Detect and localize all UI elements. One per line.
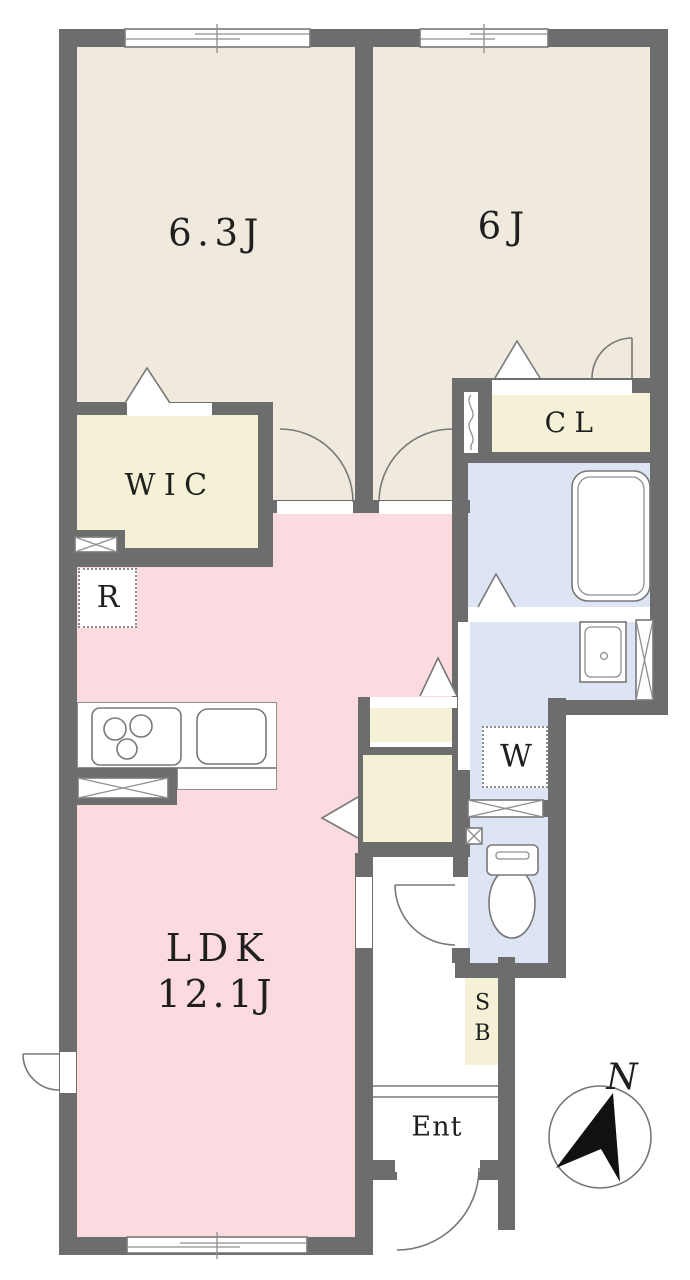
- floor-closet-hall-lower: [363, 755, 452, 842]
- floor-plan: 6.3J 6J WIC CL R W LDK 12.1J SB Ent N: [0, 0, 690, 1280]
- wall-wic-right: [258, 402, 273, 567]
- wall-toilet-left-bottom: [452, 948, 470, 963]
- floor-ldk-mid2: [77, 622, 456, 697]
- label-bedroom2: 6J: [478, 208, 533, 245]
- threshold-side-door: [60, 1052, 76, 1093]
- wall-bedroom-divider: [355, 29, 373, 513]
- threshold-hall-closet: [370, 697, 457, 708]
- label-closet: CL: [545, 409, 602, 437]
- label-bedroom1: 6.3J: [168, 215, 264, 252]
- compass: [549, 1086, 651, 1188]
- wall-outer-bottom: [59, 1237, 373, 1255]
- wall-wic-notch: [77, 530, 125, 548]
- threshold-bedroom1-door: [277, 501, 353, 514]
- floor-bathroom: [468, 463, 650, 607]
- compass-needle: [556, 1093, 620, 1182]
- door-arc-entrance: [397, 1168, 479, 1250]
- wall-toilet-left-top: [453, 857, 468, 877]
- wall-hall-closet-left2: [358, 755, 363, 842]
- wall-service-right: [548, 698, 566, 978]
- wall-kitchen-protrusion: [59, 768, 177, 805]
- kitchen-counter-edge: [177, 768, 277, 790]
- wall-entrance-bottom-right: [478, 1160, 515, 1180]
- wall-hall-closet-divider: [358, 747, 457, 755]
- kitchen-counter: [77, 702, 277, 768]
- threshold-bath-door: [478, 608, 553, 622]
- wall-bath-top: [452, 452, 668, 463]
- floor-washroom-upper: [470, 622, 638, 703]
- wall-hall-right-stub: [498, 1180, 515, 1230]
- sliding-door-washroom: [458, 622, 470, 770]
- label-refrigerator: R: [97, 583, 120, 613]
- wall-bath-left: [452, 463, 468, 630]
- floor-closet-hall-upper: [370, 708, 457, 742]
- wall-hall-right: [498, 957, 515, 1180]
- threshold-entrance-door: [395, 1160, 480, 1172]
- floor-bedroom1-extension: [273, 402, 355, 502]
- floor-toilet: [468, 817, 550, 963]
- wall-outer-right: [650, 29, 668, 715]
- threshold-closet-door: [492, 380, 632, 395]
- wall-wic-bottom: [59, 548, 273, 567]
- door-side-swing: [23, 1054, 59, 1090]
- entrance-step-line-2: [373, 1096, 498, 1098]
- floor-hall-upper: [372, 857, 453, 963]
- floor-bedroom2-extension: [373, 393, 452, 502]
- threshold-wic-door: [127, 403, 212, 416]
- opening-ldk-hall: [356, 877, 372, 948]
- label-wic: WIC: [125, 471, 216, 501]
- wall-hall-closet-bottom: [358, 842, 470, 857]
- threshold-bedroom2-door: [379, 501, 452, 514]
- wall-right-step: [550, 700, 668, 715]
- wall-entrance-bottom-left: [355, 1160, 397, 1180]
- entrance-step-line-1: [373, 1085, 498, 1087]
- wavy-panel-marker: [464, 392, 478, 453]
- wall-toilet-top: [455, 800, 550, 817]
- floor-ldk-upper: [273, 513, 452, 567]
- label-ldk: LDK: [166, 929, 271, 967]
- label-north: N: [606, 1060, 638, 1096]
- label-entrance: Ent: [411, 1114, 462, 1141]
- compass-circle: [549, 1086, 651, 1188]
- label-ldk-size: 12.1J: [157, 975, 276, 1013]
- threshold-toilet-door: [453, 877, 468, 948]
- label-shoe-box: SB: [471, 991, 493, 1052]
- label-washer: W: [500, 742, 532, 773]
